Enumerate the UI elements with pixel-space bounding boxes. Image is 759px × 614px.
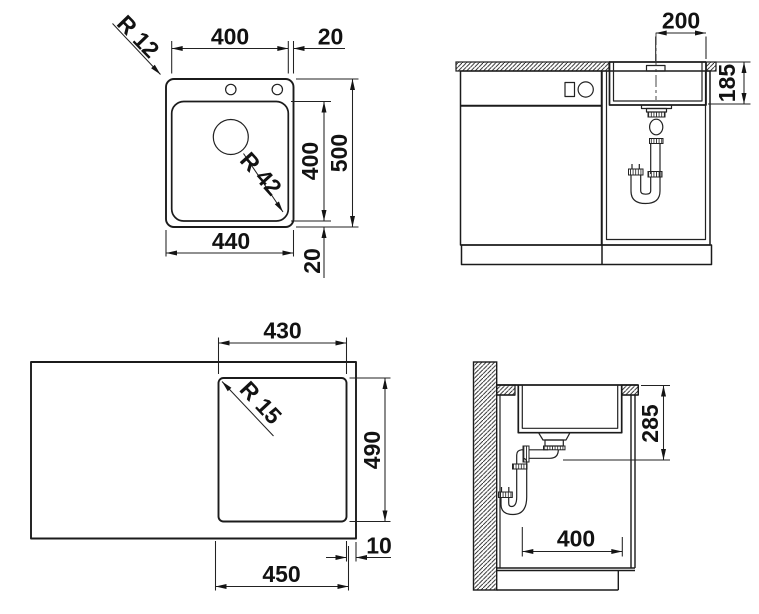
appliance-control-knob — [578, 82, 593, 97]
dim-500-right: 500 — [326, 134, 352, 172]
plinth-recess — [497, 571, 619, 591]
dim-285-right: 285 — [637, 404, 663, 443]
bowl-side-outer — [518, 385, 621, 433]
trap-outer — [631, 174, 660, 204]
cabinet-front-panel — [631, 395, 635, 568]
dim-450-bottom: 450 — [262, 561, 300, 587]
trap-stub-side — [502, 487, 509, 492]
dim-400-top: 400 — [211, 24, 249, 50]
dim-10-right: 10 — [366, 533, 392, 559]
appliance-control-rect — [565, 83, 575, 97]
extension-lines-10 — [347, 541, 357, 562]
radius-r12-label: R 12 — [112, 10, 164, 63]
extension-lines-200 — [656, 37, 706, 62]
sink-installation-drawing: R 12 R 42 400 20 400 500 20 440 — [0, 0, 759, 614]
countertop-section-left — [456, 62, 609, 71]
dim-185-right: 185 — [714, 64, 740, 103]
cutout-outline — [219, 378, 347, 522]
view-plan-cutout: 430 R 15 490 10 450 — [31, 318, 392, 591]
appliance-cabinet — [461, 71, 602, 245]
coupling-nut-side-2 — [513, 464, 528, 469]
countertop-cut-left — [497, 385, 515, 395]
wall-section — [474, 362, 497, 590]
trap-outlet-stub — [632, 164, 639, 169]
countertop-outline — [31, 362, 356, 539]
strainer-nut — [648, 112, 665, 117]
bowl-section-inner — [614, 62, 703, 101]
trap-inner — [641, 175, 651, 194]
drain-circle — [213, 120, 248, 155]
dim-20-top: 20 — [318, 24, 344, 50]
dim-20-bottom-right: 20 — [299, 248, 325, 274]
dim-400-right: 400 — [297, 142, 323, 180]
countertop-cut-right — [622, 385, 639, 395]
trap-inner-side — [509, 497, 517, 507]
radius-r42-label: R 42 — [235, 147, 287, 201]
bowl-side-inner — [522, 385, 617, 428]
strainer-body-side — [545, 440, 563, 446]
view-side-section: 285 400 — [474, 362, 671, 590]
swivel-elbow — [650, 119, 663, 135]
dim-490-right: 490 — [359, 431, 385, 469]
coupling-nut-upper — [650, 139, 664, 144]
strainer-body — [647, 109, 667, 113]
tap-hole-right — [272, 84, 282, 94]
technical-drawing-sheet: R 12 R 42 400 20 400 500 20 440 — [0, 0, 759, 614]
tailpipe — [651, 144, 660, 175]
view-top-plan-sink: R 12 R 42 400 20 400 500 20 440 — [112, 10, 358, 278]
trap-nut-side — [499, 492, 513, 498]
dim-440-bottom: 440 — [212, 228, 250, 254]
tap-hole-left — [226, 84, 236, 94]
cabinet-bottom-shelf — [497, 568, 635, 571]
view-front-section: 200 185 — [456, 8, 751, 265]
trap-outlet-nut — [629, 169, 644, 175]
outlet-elbow-pipe — [529, 450, 558, 459]
dim-200-top: 200 — [662, 8, 700, 34]
drain-trap-side — [499, 433, 571, 515]
strainer-flange-side — [539, 433, 571, 440]
dim-400-bottom-side: 400 — [557, 526, 595, 552]
plinth-front — [462, 245, 712, 265]
dim-430-top: 430 — [263, 318, 301, 344]
down-pipe-side — [517, 469, 527, 497]
drain-trap-front — [629, 105, 672, 204]
bowl-section-outer — [610, 62, 707, 105]
